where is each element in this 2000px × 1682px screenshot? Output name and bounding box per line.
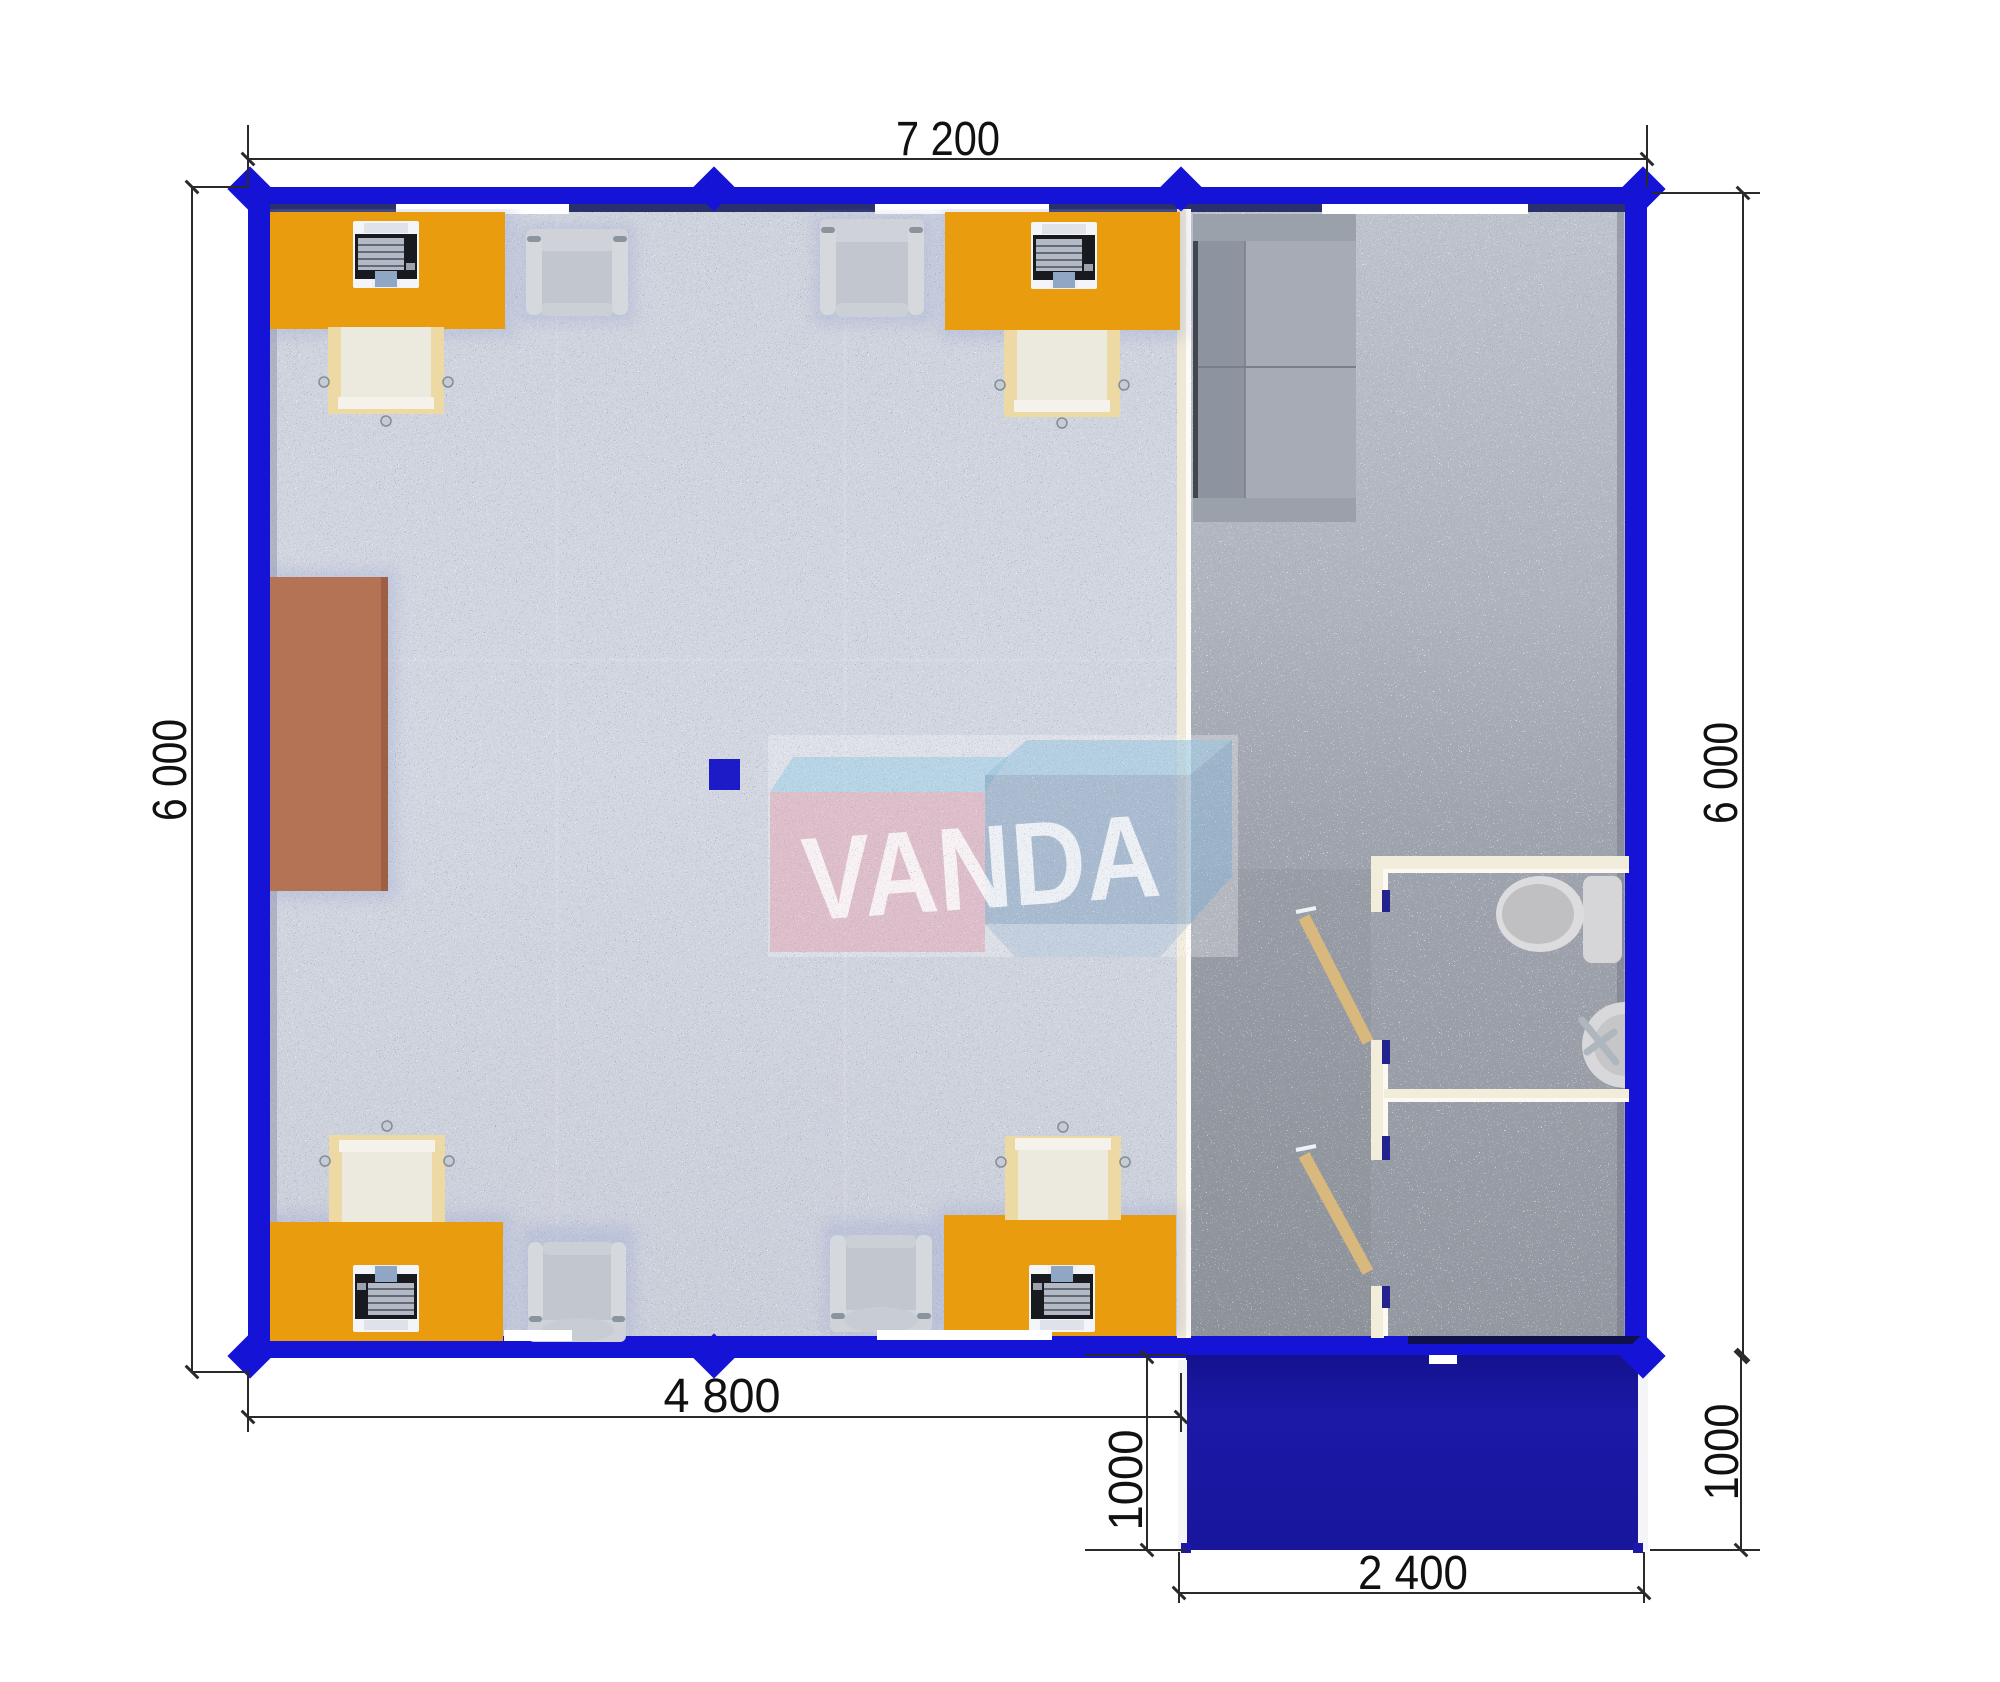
svg-text:6 000: 6 000	[1695, 722, 1748, 824]
svg-text:1000: 1000	[1696, 1404, 1749, 1501]
svg-text:2 400: 2 400	[1358, 1547, 1468, 1600]
svg-text:4 800: 4 800	[664, 1370, 781, 1423]
svg-text:7 200: 7 200	[896, 113, 1000, 166]
svg-text:1000: 1000	[1100, 1430, 1153, 1531]
svg-text:6 000: 6 000	[144, 719, 197, 821]
